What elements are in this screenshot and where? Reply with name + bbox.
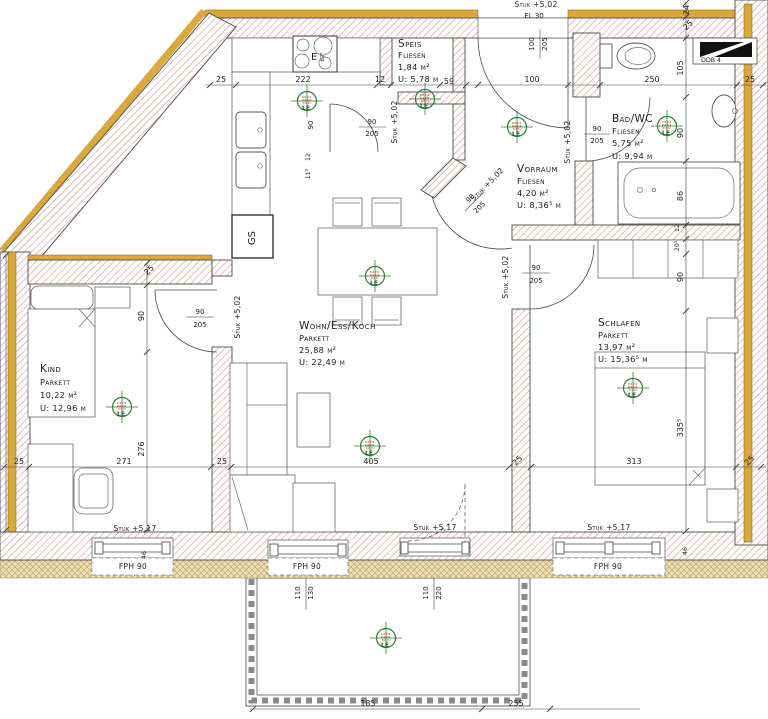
dim-label: 405 xyxy=(363,457,378,466)
marker-label: LE xyxy=(370,280,378,287)
room-title-speis: Speis xyxy=(398,38,422,50)
lintel-label-kind-window: Stuk +5,17 xyxy=(113,524,156,533)
door-size-w: 90 xyxy=(532,264,541,272)
dim-label: 313 xyxy=(626,457,641,466)
marker-label: LE xyxy=(420,103,428,110)
desk xyxy=(28,444,73,532)
dim-label: 90 xyxy=(137,311,146,321)
door-size-w: 90 xyxy=(368,118,377,126)
dim-label: 46 xyxy=(141,551,148,559)
room-perimeter-bad: U: 9,94 m xyxy=(612,151,653,161)
door-size-h: 205 xyxy=(590,137,603,145)
dim-label: 271 xyxy=(116,457,131,466)
room-floor-vorraum: Fliesen xyxy=(517,176,545,186)
desk-chair xyxy=(74,468,113,514)
room-perimeter-schlafen: U: 15,36⁵ m xyxy=(598,354,648,364)
room-perimeter-vorraum: U: 8,36⁵ m xyxy=(517,200,561,210)
dim-label: 25 xyxy=(14,457,24,466)
marker-label: LE xyxy=(512,131,520,138)
room-title-schlafen: Schlafen xyxy=(598,317,641,329)
marker-label: LE xyxy=(117,411,125,418)
dim-label: 335⁵ xyxy=(676,419,685,437)
dim-label: 20⁵ xyxy=(674,240,681,251)
dim-label: 11⁵ xyxy=(305,168,312,179)
door-size-h: 205 xyxy=(365,130,378,138)
dim-label: 86 xyxy=(676,191,685,201)
dim-label: 90 xyxy=(307,121,315,130)
room-area-vorraum: 4,20 m² xyxy=(517,188,549,198)
door-size-h: 205 xyxy=(529,277,542,285)
nightstand xyxy=(707,489,738,522)
dim-label: 222 xyxy=(295,75,310,84)
room-floor-schlafen: Parkett xyxy=(598,330,628,340)
dim-label: 12 xyxy=(305,153,312,161)
door-size-w: 90 xyxy=(593,125,602,133)
window-size-w: 110 xyxy=(422,586,430,599)
dining-set xyxy=(318,198,437,325)
room-floor-bad: Fliesen xyxy=(612,126,640,136)
floorplan-canvas: Speis Fliesen 1,84 m² U: 5,78 m Vorraum … xyxy=(0,0,768,719)
dim-label: 12 xyxy=(375,75,385,84)
entry-note: EL 30 xyxy=(524,12,543,20)
dishwasher-label: GS xyxy=(247,231,258,245)
dim-label: 100 xyxy=(524,75,539,84)
room-floor-speis: Fliesen xyxy=(398,50,426,60)
door-kind xyxy=(155,290,217,352)
sofa xyxy=(230,363,335,532)
door-size-w: 90 xyxy=(196,308,205,316)
room-title-kind: Kind xyxy=(40,363,61,375)
room-title-bad: Bad/WC xyxy=(612,113,653,125)
washbasin-icon xyxy=(712,95,738,127)
lintel-label-bad-door: Stuk +5,02 xyxy=(563,120,572,163)
room-floor-wohn: Parkett xyxy=(299,333,329,343)
dim-label: 24 xyxy=(682,5,691,15)
duct-label: DDB 4 xyxy=(701,57,721,64)
window-size-w: 110 xyxy=(294,586,302,599)
dim-label: 25 xyxy=(217,457,227,466)
room-perimeter-wohn: U: 22,49 m xyxy=(299,357,345,367)
room-area-wohn: 25,88 m² xyxy=(299,345,336,355)
room-title-wohn: Wohn/Ess/Koch xyxy=(299,320,376,332)
room-floor-kind: Parkett xyxy=(40,377,70,387)
toilet-icon xyxy=(600,43,655,69)
lintel-label-schlafen-door: Stuk +5,02 xyxy=(501,255,510,298)
lintel-label-speis-door: Stuk +5,02 xyxy=(390,100,399,143)
marker-label: LE xyxy=(365,450,373,457)
dim-label: 255 xyxy=(508,699,523,708)
coffee-table xyxy=(297,393,330,447)
room-area-schlafen: 13,97 m² xyxy=(598,342,635,352)
marker-label: LE xyxy=(381,642,389,649)
dim-label: 59 xyxy=(444,77,454,86)
room-area-bad: 5,75 m² xyxy=(612,138,644,148)
lintel-label-balcony-door: Stuk +5,17 xyxy=(413,523,456,532)
dim-label: 46 xyxy=(682,547,689,555)
window-size-h: 220 xyxy=(435,586,443,599)
marker-label: LE xyxy=(628,392,636,399)
dim-label: 90 xyxy=(676,128,685,138)
window-size-h: 130 xyxy=(307,586,315,599)
door-size-h: 205 xyxy=(193,321,206,329)
dim-label: 25 xyxy=(216,75,226,84)
entrance-door xyxy=(478,38,568,128)
lintel-label-kind-door: Stuk +5,02 xyxy=(233,295,242,338)
dim-label: 105 xyxy=(676,60,685,75)
marker-label: LE xyxy=(662,130,670,137)
entrance-size-h: 205 xyxy=(541,37,549,50)
stove-label: E xyxy=(311,52,317,63)
lintel-label-top: Stuk +5,02 xyxy=(514,0,557,9)
marker-label: LE xyxy=(302,105,310,112)
room-area-kind: 10,22 m² xyxy=(40,390,77,400)
schlafen-bed xyxy=(595,352,705,485)
room-perimeter-kind: U: 12,96 m xyxy=(40,403,86,413)
floorplan-drawing: Speis Fliesen 1,84 m² U: 5,78 m Vorraum … xyxy=(0,0,768,719)
dim-label: 276 xyxy=(137,441,146,456)
entrance-size-w: 100 xyxy=(528,37,536,50)
dim-label: 25 xyxy=(745,75,755,84)
dim-label: 185 xyxy=(360,699,375,708)
dim-label: 12 xyxy=(674,224,681,232)
room-title-vorraum: Vorraum xyxy=(517,163,558,175)
room-perimeter-speis: U: 5,78 m xyxy=(398,74,439,84)
door-speis xyxy=(330,104,378,152)
dim-label: 90 xyxy=(676,272,685,282)
room-area-speis: 1,84 m² xyxy=(398,62,430,72)
dim-label: 250 xyxy=(644,75,659,84)
parapet-label-kind: FPH 90 xyxy=(119,562,147,571)
parapet-label-wohn: FPH 90 xyxy=(293,562,321,571)
stove-dim: 62⁵ xyxy=(319,52,326,61)
lintel-label-schlafen-window: Stuk +5,17 xyxy=(587,523,630,532)
parapet-label-schlafen: FPH 90 xyxy=(594,562,622,571)
